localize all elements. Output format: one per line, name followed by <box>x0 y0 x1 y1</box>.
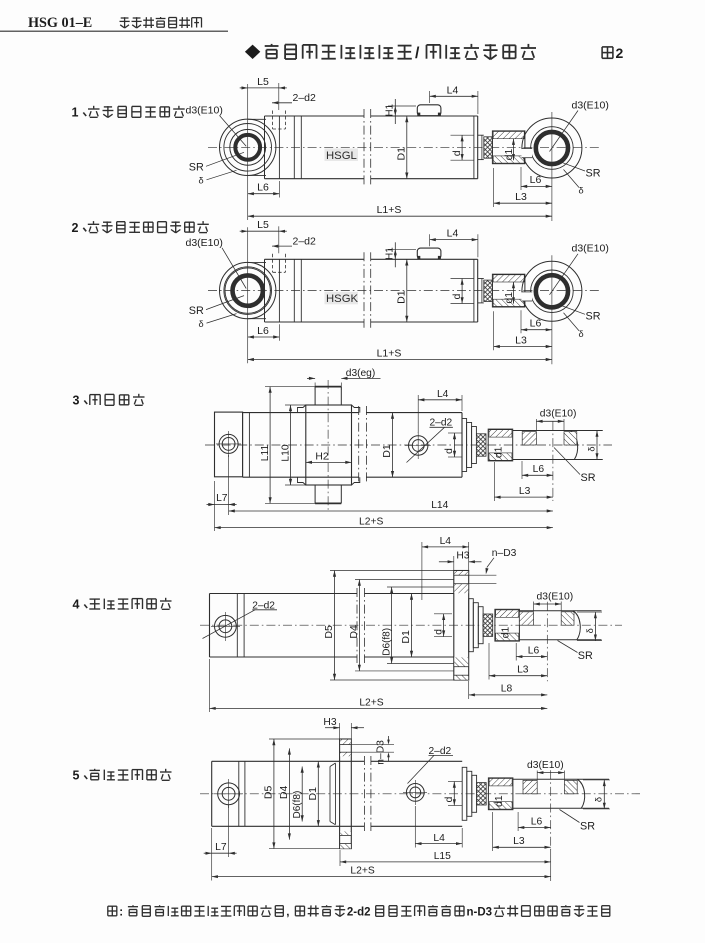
svg-text:L6: L6 <box>257 325 269 337</box>
svg-text:L3: L3 <box>515 334 527 346</box>
svg-text:L6: L6 <box>528 645 540 656</box>
svg-text:δ: δ <box>199 319 204 329</box>
svg-text:d3(E10): d3(E10) <box>572 99 609 111</box>
svg-text:D1: D1 <box>400 630 412 644</box>
svg-text:L3: L3 <box>519 486 531 497</box>
svg-text:L3: L3 <box>517 665 529 676</box>
svg-text:L6: L6 <box>257 182 269 194</box>
svg-text:H1: H1 <box>384 247 395 260</box>
svg-text:L1+S: L1+S <box>377 204 402 216</box>
svg-text:L14: L14 <box>431 500 448 511</box>
svg-text:HSGL: HSGL <box>326 150 357 162</box>
svg-text:D1: D1 <box>307 787 319 801</box>
svg-text:4: 4 <box>73 598 80 612</box>
svg-text:L5: L5 <box>257 76 269 88</box>
svg-text:n-D3: n-D3 <box>467 907 493 919</box>
svg-text:L11: L11 <box>260 445 271 462</box>
svg-text:d: d <box>444 448 455 454</box>
svg-text:H2: H2 <box>315 451 328 462</box>
svg-text:D1: D1 <box>396 147 408 161</box>
svg-text:d: d <box>452 293 463 299</box>
svg-text:L1+S: L1+S <box>377 347 402 359</box>
svg-text:D4: D4 <box>278 786 290 800</box>
svg-text:d: d <box>444 796 455 802</box>
svg-text:D1: D1 <box>396 290 408 304</box>
svg-text:HSGK: HSGK <box>326 293 358 305</box>
svg-text:d3(E10): d3(E10) <box>527 760 564 771</box>
svg-text:L2+S: L2+S <box>350 866 374 877</box>
svg-text:L4: L4 <box>440 536 452 547</box>
svg-text:H3: H3 <box>456 550 469 561</box>
svg-text:1: 1 <box>72 106 79 120</box>
svg-text:L4: L4 <box>437 389 449 400</box>
svg-text:δ: δ <box>594 797 604 802</box>
svg-text:D1: D1 <box>381 444 393 458</box>
svg-text:δ: δ <box>579 186 584 196</box>
svg-text:L6: L6 <box>530 174 542 186</box>
svg-text:d3(E10): d3(E10) <box>537 591 574 602</box>
svg-text:L8: L8 <box>501 683 513 694</box>
svg-text:L6: L6 <box>530 318 542 330</box>
svg-text:δ: δ <box>199 176 204 186</box>
svg-text:HSG 01–E: HSG 01–E <box>28 15 92 31</box>
svg-text:d3(eg): d3(eg) <box>346 368 375 379</box>
svg-text:,: , <box>286 907 289 919</box>
svg-text:D6(f8): D6(f8) <box>292 791 303 819</box>
svg-text:SR: SR <box>578 650 593 662</box>
svg-text:L2+S: L2+S <box>359 697 383 708</box>
svg-text:SR: SR <box>586 311 601 323</box>
svg-text:2-d2: 2-d2 <box>347 907 371 919</box>
svg-text:L15: L15 <box>434 851 451 862</box>
svg-text:L7: L7 <box>215 842 227 853</box>
svg-text:L10: L10 <box>281 444 292 461</box>
svg-text:2: 2 <box>72 221 79 235</box>
svg-text:d1: d1 <box>494 795 505 807</box>
svg-text:2: 2 <box>616 45 624 61</box>
svg-text:L6: L6 <box>533 464 545 475</box>
svg-text:d1: d1 <box>500 627 511 639</box>
svg-text:D4: D4 <box>348 625 360 639</box>
svg-text:L2+S: L2+S <box>359 517 383 528</box>
svg-text:SR: SR <box>586 167 601 179</box>
svg-text:L4: L4 <box>433 833 445 844</box>
svg-text:L5: L5 <box>257 219 269 231</box>
svg-text:L3: L3 <box>513 836 525 847</box>
svg-text:SR: SR <box>189 305 204 317</box>
svg-text:δ: δ <box>587 446 597 451</box>
svg-text:L6: L6 <box>531 816 543 827</box>
svg-text:SR: SR <box>580 820 595 832</box>
svg-text:δ: δ <box>579 329 584 339</box>
svg-text:n–D3: n–D3 <box>492 548 517 559</box>
svg-text:H1: H1 <box>384 104 395 117</box>
svg-text::: : <box>119 907 123 919</box>
svg-text:SR: SR <box>581 472 596 484</box>
svg-text:D5: D5 <box>263 786 275 800</box>
svg-text:/: / <box>415 45 420 62</box>
svg-text:D6(f8): D6(f8) <box>381 628 392 656</box>
svg-text:2–d2: 2–d2 <box>293 92 317 104</box>
svg-text:3: 3 <box>73 394 80 408</box>
svg-text:d: d <box>452 150 463 156</box>
svg-text:d1: d1 <box>504 292 515 304</box>
svg-text:d: d <box>433 629 444 635</box>
svg-text:2–d2: 2–d2 <box>293 236 317 248</box>
svg-text:5: 5 <box>73 769 80 783</box>
svg-text:d3(E10): d3(E10) <box>186 104 223 116</box>
svg-text:SR: SR <box>189 162 204 174</box>
svg-text:d3(E10): d3(E10) <box>540 408 577 419</box>
svg-text:d3(E10): d3(E10) <box>186 237 223 249</box>
svg-text:d3(E10): d3(E10) <box>572 243 609 255</box>
svg-text:d1: d1 <box>494 446 505 458</box>
svg-text:L4: L4 <box>447 84 459 96</box>
svg-text:L3: L3 <box>515 191 527 203</box>
svg-text:D5: D5 <box>323 625 335 639</box>
svg-text:L7: L7 <box>216 493 228 504</box>
svg-text:δ: δ <box>585 628 595 633</box>
svg-text:d1: d1 <box>504 149 515 161</box>
svg-text:L4: L4 <box>447 228 459 240</box>
svg-text:H3: H3 <box>323 717 336 728</box>
